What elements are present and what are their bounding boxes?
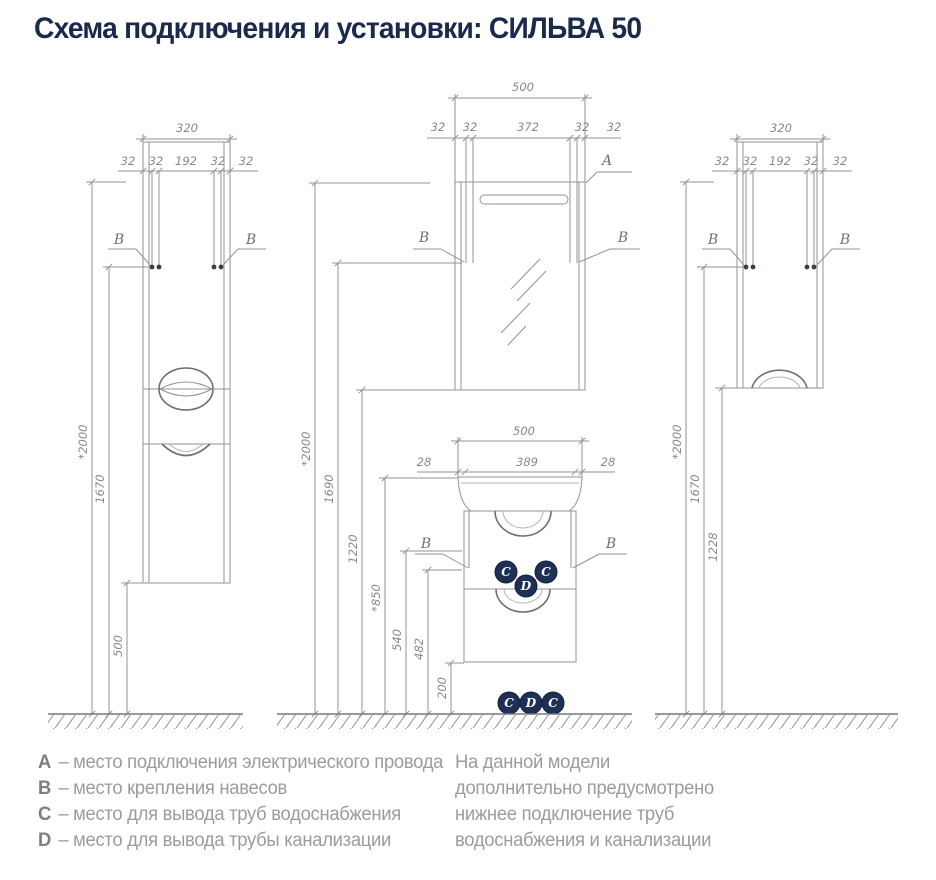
dim-label: 32 xyxy=(715,154,730,168)
dim-label: 1220 xyxy=(346,534,360,563)
dim-label: 192 xyxy=(769,154,791,168)
legend-item-b: B – место крепления навесов xyxy=(38,776,426,802)
marker-b-right: B xyxy=(223,232,266,265)
legend-item-d: D – место для вывода трубы канализации xyxy=(38,828,426,854)
dim-label: 320 xyxy=(770,121,792,135)
floor-line xyxy=(48,714,898,729)
dim-label: 482 xyxy=(412,638,426,660)
dim-label: 28 xyxy=(601,455,616,469)
dim-label: 32 xyxy=(121,154,136,168)
dim-label: *2000 xyxy=(76,424,90,459)
legend-letter: A xyxy=(38,750,54,776)
svg-text:C: C xyxy=(501,565,511,579)
svg-text:C: C xyxy=(548,696,558,710)
dim-label: 389 xyxy=(516,455,538,469)
middle-mirror-basin-drawing: 500 32 32 372 32 32 A B B xyxy=(299,80,640,717)
dim-label: 200 xyxy=(435,677,449,699)
note-line: дополнительно предусмотрено xyxy=(455,776,785,802)
dim-label: 500 xyxy=(111,635,125,657)
legend-text: – место для вывода труб водоснабжения xyxy=(58,804,401,825)
svg-text:C: C xyxy=(504,696,514,710)
svg-text:D: D xyxy=(520,579,532,593)
svg-text:D: D xyxy=(525,696,537,710)
dim-label: 500 xyxy=(512,80,534,94)
dim-label: 32 xyxy=(743,154,758,168)
drawer-handle-arc xyxy=(162,444,210,456)
mirror-glass-hatch xyxy=(501,259,546,345)
dim-label: *850 xyxy=(369,584,383,612)
svg-text:B: B xyxy=(617,230,628,246)
dim-label: 32 xyxy=(607,120,622,134)
dim-label: 1690 xyxy=(322,474,336,503)
svg-text:B: B xyxy=(113,232,124,248)
marker-b-left: B xyxy=(702,232,744,265)
legend-text: – место для вывода трубы канализации xyxy=(58,830,391,851)
legend-text: – место подключения электрического прово… xyxy=(58,752,443,773)
dim-basin-width: 500 xyxy=(451,424,589,477)
legend-item-a: A – место подключения электрического про… xyxy=(38,750,426,776)
dim-heights-middle: *2000 1690 1220 *850 540 482 200 xyxy=(299,180,464,717)
legend-text: – место крепления навесов xyxy=(58,778,287,799)
dim-width-total: 320 xyxy=(136,121,237,142)
note-line: На данной модели xyxy=(455,750,785,776)
washbasin xyxy=(458,477,582,511)
legend-item-c: C – место для вывода труб водоснабжения xyxy=(38,802,426,828)
dim-label: 1228 xyxy=(706,532,720,561)
marker-b-mirror-right: B xyxy=(579,230,640,262)
dim-label: *2000 xyxy=(670,424,684,459)
dim-mirror-hanger-row: 32 32 372 32 32 xyxy=(427,120,621,141)
left-cabinet-drawing: 320 32 32 192 32 32 B B xyxy=(76,121,266,717)
pipe-markers-floor: C D C xyxy=(498,692,564,714)
right-cabinet-drawing: 320 32 32 192 32 32 B B xyxy=(670,121,860,717)
dim-label: 32 xyxy=(211,154,226,168)
svg-text:B: B xyxy=(605,536,616,552)
marker-b-basin-right: B xyxy=(573,536,627,568)
dim-label: 32 xyxy=(833,154,848,168)
dim-label: 320 xyxy=(176,121,198,135)
cabinet-outline xyxy=(143,142,230,583)
dim-label: 540 xyxy=(390,629,404,651)
legend-letter: D xyxy=(38,828,54,854)
svg-text:B: B xyxy=(707,232,718,248)
note-line: водоснабжения и канализации xyxy=(455,828,785,854)
dim-label: 372 xyxy=(517,120,539,134)
dim-label: 1670 xyxy=(688,474,702,503)
dim-label: 500 xyxy=(513,424,535,438)
installation-diagram: 320 32 32 192 32 32 B B xyxy=(0,0,936,880)
dim-label: 32 xyxy=(463,120,478,134)
dim-label: 192 xyxy=(175,154,197,168)
dim-label: 32 xyxy=(804,154,819,168)
svg-text:B: B xyxy=(245,232,256,248)
mirror-light-slot xyxy=(480,195,568,204)
svg-text:A: A xyxy=(600,153,612,169)
svg-text:B: B xyxy=(420,536,431,552)
note-line: нижнее подключение труб xyxy=(455,802,785,828)
model-note: На данной модели дополнительно предусмот… xyxy=(455,750,785,854)
dim-label: 32 xyxy=(239,154,254,168)
svg-text:B: B xyxy=(839,232,850,248)
dim-basin-row: 28 389 28 xyxy=(417,455,616,475)
cabinet-outline xyxy=(737,142,823,388)
dim-heights: *2000 1670 500 xyxy=(76,179,148,717)
dim-width-total: 320 xyxy=(730,121,830,142)
dim-label: 28 xyxy=(417,455,432,469)
marker-b-basin-left: B xyxy=(415,536,468,568)
mirror-cabinet xyxy=(455,138,585,390)
svg-text:B: B xyxy=(418,230,429,246)
dim-label: 32 xyxy=(431,120,446,134)
marker-b-left: B xyxy=(108,232,150,265)
marker-a: A xyxy=(586,153,632,183)
dim-label: 32 xyxy=(575,120,590,134)
dim-label: *2000 xyxy=(299,431,313,466)
dim-label: 1670 xyxy=(93,474,107,503)
dim-heights: *2000 1670 1228 xyxy=(670,179,744,717)
dim-label: 32 xyxy=(149,154,164,168)
marker-b-mirror-left: B xyxy=(413,230,464,262)
legend: A – место подключения электрического про… xyxy=(38,750,426,854)
legend-letter: C xyxy=(38,802,54,828)
svg-text:C: C xyxy=(541,565,551,579)
legend-letter: B xyxy=(38,776,54,802)
